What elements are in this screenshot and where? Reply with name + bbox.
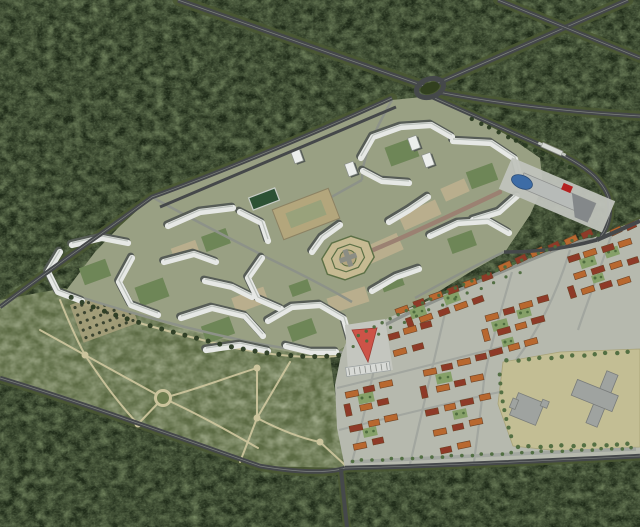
sports-field <box>498 349 640 451</box>
masterplan-aerial-render: Aerial 3D masterplan render: a new resid… <box>0 0 640 527</box>
park-central-circle <box>154 389 172 407</box>
masterplan-svg <box>0 0 640 527</box>
